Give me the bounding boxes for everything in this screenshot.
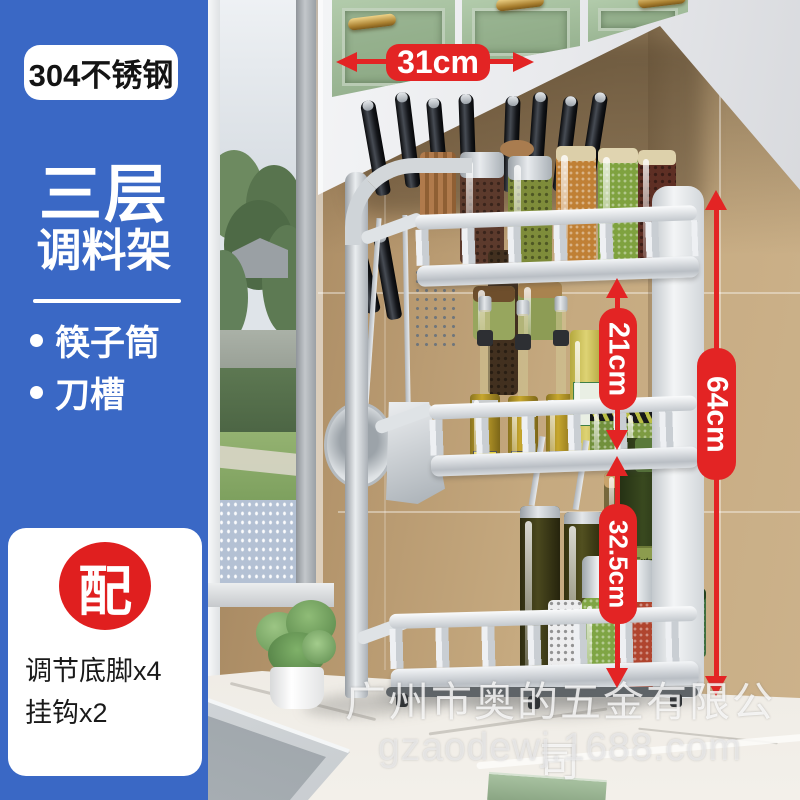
accessory-badge: 配 (59, 542, 151, 630)
hedge (218, 368, 298, 434)
divider (33, 299, 181, 303)
dimension-arrowhead (705, 190, 727, 210)
material-badge: 304不锈钢 (24, 45, 178, 100)
jar-lid (638, 150, 676, 165)
dimension-arrowhead (513, 52, 534, 72)
jar-lid (598, 148, 638, 163)
bottle-ring (515, 334, 531, 350)
plant-pot (270, 667, 324, 709)
bottle-neck (480, 310, 490, 394)
bottle-ring (477, 330, 493, 346)
pond (218, 500, 298, 586)
dimension-width-label: 31cm (386, 44, 490, 81)
dimension-height-label: 64cm (697, 348, 736, 480)
product-image: DE DE DE Extra Virgin (0, 0, 800, 800)
bottle-ring (553, 330, 569, 346)
watermark-website: gzaodewj.1688.com (325, 726, 795, 770)
feature-label: 刀槽 (55, 367, 125, 418)
rack-tier-1 (415, 205, 699, 287)
jar-lid (556, 146, 596, 161)
bottle-neck (518, 314, 528, 398)
canister-lid (508, 156, 552, 180)
accessory-list: 调节底脚x4 挂钩x2 (25, 650, 162, 734)
window-mullion (296, 0, 316, 586)
dispenser-collar (520, 506, 560, 518)
dimension-arrowhead (606, 456, 628, 476)
window-view (218, 0, 298, 586)
rack-tier-2 (429, 395, 699, 476)
feature-label: 筷子筒 (55, 315, 160, 366)
product-title-line2: 调料架 (0, 214, 208, 279)
rack-left-rail (345, 172, 368, 698)
dimension-arrowhead (606, 430, 628, 450)
bullet-icon (30, 334, 43, 347)
plant-foliage (302, 630, 336, 664)
dispenser-collar (564, 512, 604, 524)
dimension-arrowhead (606, 278, 628, 298)
dimension-lower-label: 32.5cm (599, 504, 637, 624)
bullet-icon (30, 386, 43, 399)
window-frame (208, 0, 220, 676)
bottle-neck (556, 310, 566, 394)
accessory-item: 挂钩x2 (25, 692, 162, 734)
feature-item: 筷子筒 (30, 314, 160, 366)
feature-list: 筷子筒 刀槽 (30, 314, 160, 418)
info-sidebar: 304不锈钢 三层 调料架 筷子筒 刀槽 配 调节底脚x4 挂钩x2 (0, 0, 208, 800)
accessory-item: 调节底脚x4 (25, 650, 162, 692)
garden-wall (218, 330, 298, 370)
window-frame-edge (316, 0, 323, 600)
dimension-tier-label: 21cm (599, 308, 637, 410)
accessory-card: 配 调节底脚x4 挂钩x2 (8, 528, 202, 776)
feature-item: 刀槽 (30, 366, 160, 418)
